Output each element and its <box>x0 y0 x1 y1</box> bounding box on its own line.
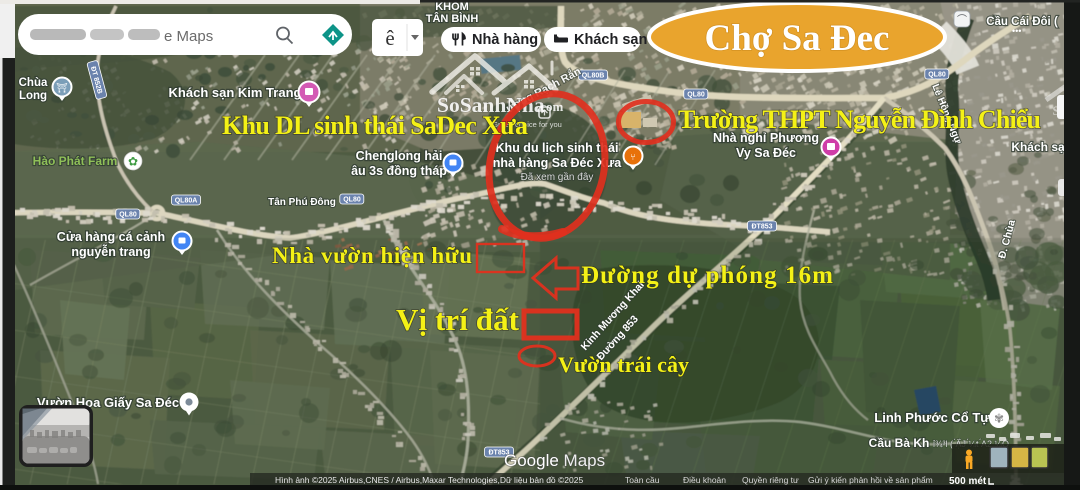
svg-text:Gửi ý kiến phản hồi về sản phẩ: Gửi ý kiến phản hồi về sản phẩm <box>808 475 933 485</box>
svg-text:Khách sạn: Khách sạn <box>574 32 647 48</box>
svg-text:Tân Phú Đông: Tân Phú Đông <box>268 197 336 208</box>
svg-text:Khu du lịch sinh thái: Khu du lịch sinh thái <box>496 141 619 155</box>
svg-text:Long: Long <box>19 90 47 102</box>
svg-text:⛩: ⛩ <box>56 83 67 93</box>
svg-text:Khách sạn Kim Trang: Khách sạn Kim Trang <box>169 85 302 100</box>
svg-text:Nhà hàng: Nhà hàng <box>472 32 538 48</box>
svg-text:Vị trí đất: Vị trí đất <box>396 302 520 337</box>
svg-text:⌒: ⌒ <box>957 14 967 26</box>
svg-text:Đường dự phóng 16m: Đường dự phóng 16m <box>581 262 833 289</box>
svg-text:Điều khoản: Điều khoản <box>683 475 726 485</box>
svg-text:Trường THPT Nguyễn Đình Chiểu: Trường THPT Nguyễn Đình Chiểu <box>678 105 1041 134</box>
svg-text:ĐT853: ĐT853 <box>751 224 772 231</box>
svg-text:ê: ê <box>385 26 394 50</box>
svg-text:nguyễn trang: nguyễn trang <box>71 244 150 259</box>
svg-text:Chenglong hải: Chenglong hải <box>356 149 443 163</box>
svg-text:e Maps: e Maps <box>164 28 213 45</box>
svg-text:QL80: QL80 <box>687 92 705 99</box>
svg-text:Hào Phát Farm: Hào Phát Farm <box>33 154 118 168</box>
svg-text:Cửa hàng cá cảnh: Cửa hàng cá cảnh <box>57 230 165 244</box>
svg-text:TÂN BÌNH: TÂN BÌNH <box>426 12 479 25</box>
svg-text:Khu DL sinh thái SaDec Xưa: Khu DL sinh thái SaDec Xưa <box>222 111 528 140</box>
svg-text:Cầu Cái Đôi (: Cầu Cái Đôi ( <box>986 16 1058 28</box>
svg-text:QL80: QL80 <box>343 197 361 204</box>
svg-text:Đã xem gần đây: Đã xem gần đây <box>521 171 594 183</box>
svg-text:QL80A: QL80A <box>175 198 198 205</box>
svg-text:Google Maps: Google Maps <box>504 451 605 470</box>
svg-text:Toàn cầu: Toàn cầu <box>625 475 660 485</box>
svg-text:⑂: ⑂ <box>630 152 635 162</box>
svg-text:Vườn trái cây: Vườn trái cây <box>558 352 689 377</box>
svg-text:QL80: QL80 <box>928 72 946 79</box>
svg-text:✾: ✾ <box>994 412 1004 426</box>
svg-text:âu 3s đồng tháp: âu 3s đồng tháp <box>351 164 447 178</box>
svg-text:Nhà vườn hiện hữu: Nhà vườn hiện hữu <box>272 243 472 268</box>
svg-text:Chùa: Chùa <box>19 77 48 89</box>
svg-text:Khách sạ: Khách sạ <box>1011 140 1065 154</box>
svg-text:•••: ••• <box>1012 26 1021 36</box>
svg-text:Cầu Bà Kh: Cầu Bà Kh <box>869 436 930 450</box>
svg-text:Linh Phước Cổ Tự: Linh Phước Cổ Tự <box>874 410 990 425</box>
svg-text:Vy Sa Đéc: Vy Sa Đéc <box>736 146 796 160</box>
svg-text:Quyền riêng tư: Quyền riêng tư <box>742 475 799 485</box>
svg-text:QL80: QL80 <box>119 212 137 219</box>
svg-text:Hình ảnh ©2025 Airbus,CNES / A: Hình ảnh ©2025 Airbus,CNES / Airbus,Maxa… <box>275 475 583 485</box>
svg-text:Chợ Sa Đec: Chợ Sa Đec <box>705 18 890 59</box>
svg-text:QL80B: QL80B <box>582 73 605 80</box>
svg-text:✿: ✿ <box>128 155 138 169</box>
